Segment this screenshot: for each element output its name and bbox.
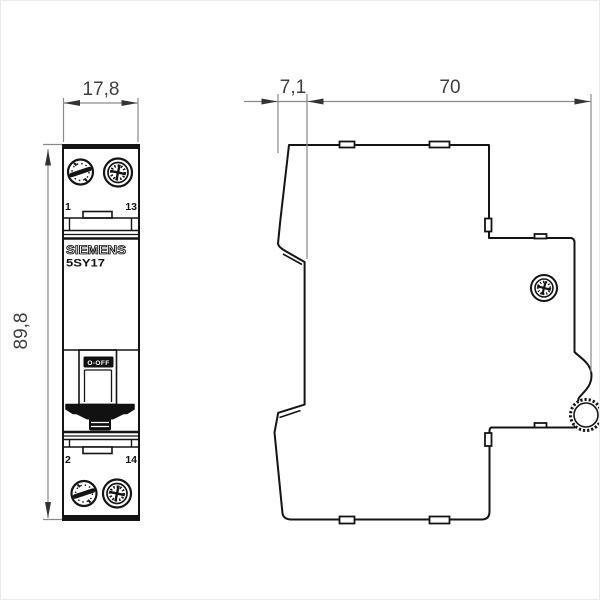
side-view (275, 142, 600, 524)
latch-notch (485, 219, 492, 232)
arrowhead-down (45, 502, 51, 518)
combi-screw-icon (104, 159, 132, 187)
toggle-area: O-OFF (63, 350, 139, 431)
screw-tick (74, 163, 77, 166)
top-tab (430, 142, 450, 148)
screw-slot (72, 169, 90, 175)
dimension-front-depth: 7,1 (244, 77, 307, 259)
front-bottom-edge-bar (63, 515, 139, 520)
dimension-front-width: 17,8 (64, 79, 139, 142)
retaining-lug (535, 234, 547, 239)
dimension-depth: 70 (307, 77, 591, 372)
terminal-label-14: 14 (125, 454, 137, 466)
dimension-value-height: 89,8 (11, 313, 32, 350)
band-tab (83, 447, 112, 454)
pozidriv-screw-icon (68, 160, 93, 185)
retaining-lug (535, 423, 547, 428)
dimension-value-depth: 70 (439, 77, 460, 98)
front-lower-band (63, 432, 139, 454)
screw-tick (78, 485, 81, 488)
front-view: 1 13 SIEMENS 5SY17 O-OFF (63, 144, 139, 520)
top-tab (340, 142, 355, 148)
band-tab (83, 212, 112, 219)
clip-wheel-body (574, 403, 598, 427)
dimension-value-front-depth: 7,1 (280, 77, 306, 98)
arrowhead-left (308, 99, 324, 105)
terminal-label-1: 1 (65, 201, 71, 213)
side-view-outline (275, 145, 592, 520)
combi-screw-icon (531, 275, 557, 301)
screw-tick (85, 179, 88, 182)
brand-logo: SIEMENS (66, 243, 126, 257)
toggle-handle-bar (66, 405, 134, 414)
dimension-height: 89,8 (11, 145, 62, 520)
terminal-label-2: 2 (65, 454, 71, 466)
front-top-edge-bar (63, 144, 139, 149)
bottom-tab (430, 517, 450, 524)
model-label: 5SY17 (66, 258, 105, 270)
arrowhead-up (45, 150, 51, 166)
toggle-label: O-OFF (87, 360, 109, 367)
dimension-value-width: 17,8 (83, 79, 120, 100)
screw-cross-v (115, 486, 118, 502)
terminal-label-13: 13 (125, 201, 137, 213)
bottom-tab (340, 517, 355, 524)
dimension-drawing: 1 13 SIEMENS 5SY17 O-OFF (1, 1, 600, 600)
arrowhead-left (64, 100, 80, 106)
arrowhead-right (262, 99, 278, 105)
combi-screw-icon (103, 480, 131, 508)
arrowhead-right (122, 100, 138, 106)
arrowhead-right (575, 99, 591, 105)
pozidriv-screw-icon (72, 481, 97, 506)
screw-slot (75, 491, 93, 497)
front-upper-band (63, 212, 139, 239)
screw-tick (88, 500, 91, 503)
latch-notch (485, 433, 492, 446)
toggle-handle-knob (89, 418, 111, 431)
screw-cross-v (116, 165, 119, 181)
dimension-drawing-canvas: 1 13 SIEMENS 5SY17 O-OFF (0, 0, 600, 600)
